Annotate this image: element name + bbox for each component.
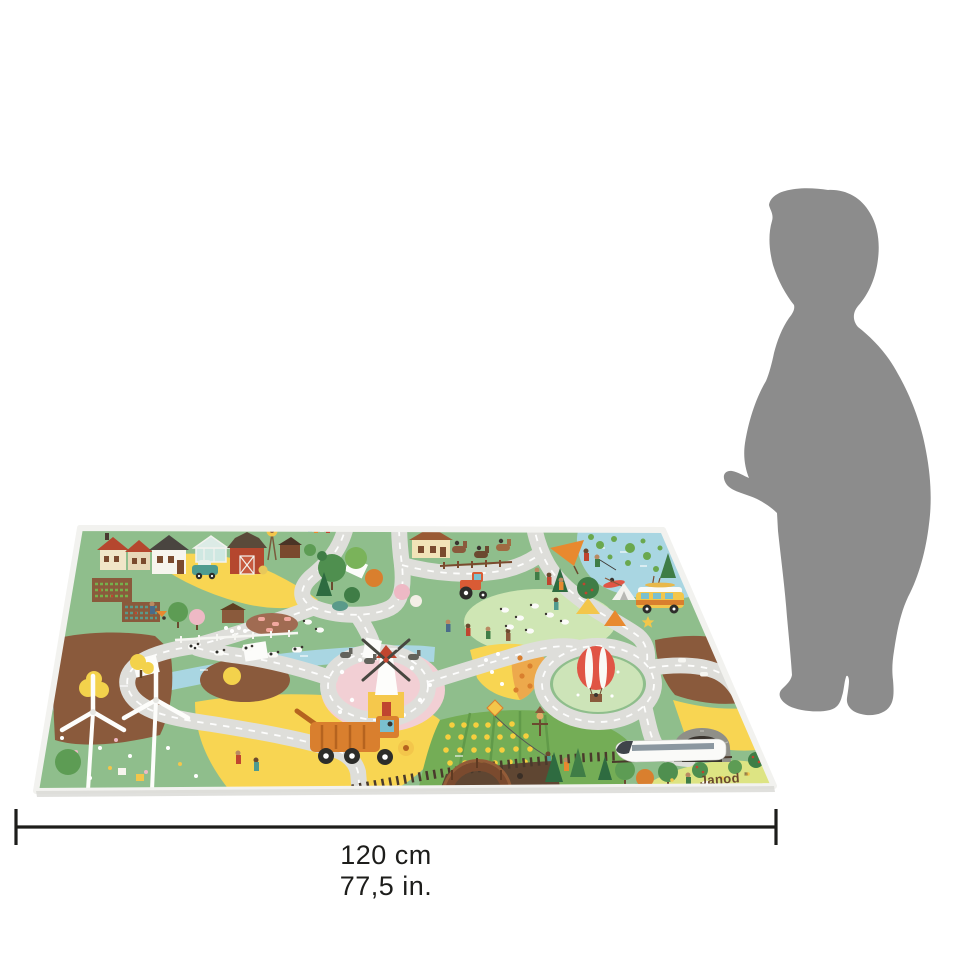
product-image: Janod ® 120 cm 77,5 in.	[0, 0, 970, 971]
balloon-envelope	[577, 646, 615, 690]
meadow-tree	[55, 749, 81, 775]
windmill-door	[382, 702, 391, 718]
train	[612, 739, 732, 762]
dimension-cm-label: 120 cm	[276, 840, 496, 871]
windmill-hub	[383, 657, 388, 662]
apple-tree	[577, 577, 599, 599]
mole	[517, 773, 523, 779]
blossom-tree-white	[410, 595, 422, 607]
play-mat: Janod ®	[36, 522, 775, 797]
balloon-passenger	[594, 693, 598, 697]
scene-svg: Janod ®	[0, 0, 970, 971]
child-silhouette	[724, 188, 931, 715]
dimension-in-label: 77,5 in.	[276, 871, 496, 902]
blossom-tree-pink	[394, 584, 410, 600]
dimension-labels: 120 cm 77,5 in.	[276, 840, 496, 902]
janod-logo-reg: ®	[744, 771, 749, 778]
